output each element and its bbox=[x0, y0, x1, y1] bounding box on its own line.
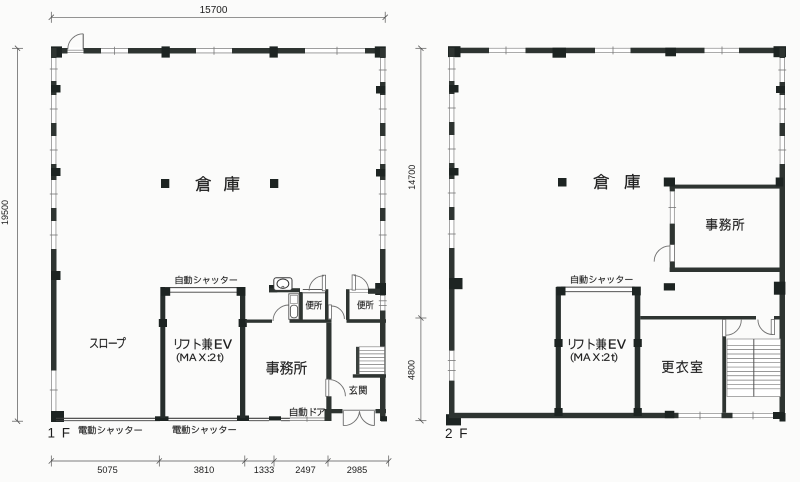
svg-text:2497: 2497 bbox=[295, 465, 315, 475]
svg-text:5075: 5075 bbox=[97, 465, 117, 475]
svg-text:14700: 14700 bbox=[407, 165, 417, 190]
svg-text:19500: 19500 bbox=[0, 200, 10, 225]
svg-text:1333: 1333 bbox=[254, 465, 274, 475]
svg-text:4800: 4800 bbox=[407, 360, 417, 380]
svg-text:1 F: 1 F bbox=[48, 426, 72, 441]
svg-text:2 F: 2 F bbox=[445, 426, 469, 441]
svg-text:2985: 2985 bbox=[347, 465, 367, 475]
svg-text:3810: 3810 bbox=[194, 465, 214, 475]
svg-text:15700: 15700 bbox=[200, 5, 228, 16]
